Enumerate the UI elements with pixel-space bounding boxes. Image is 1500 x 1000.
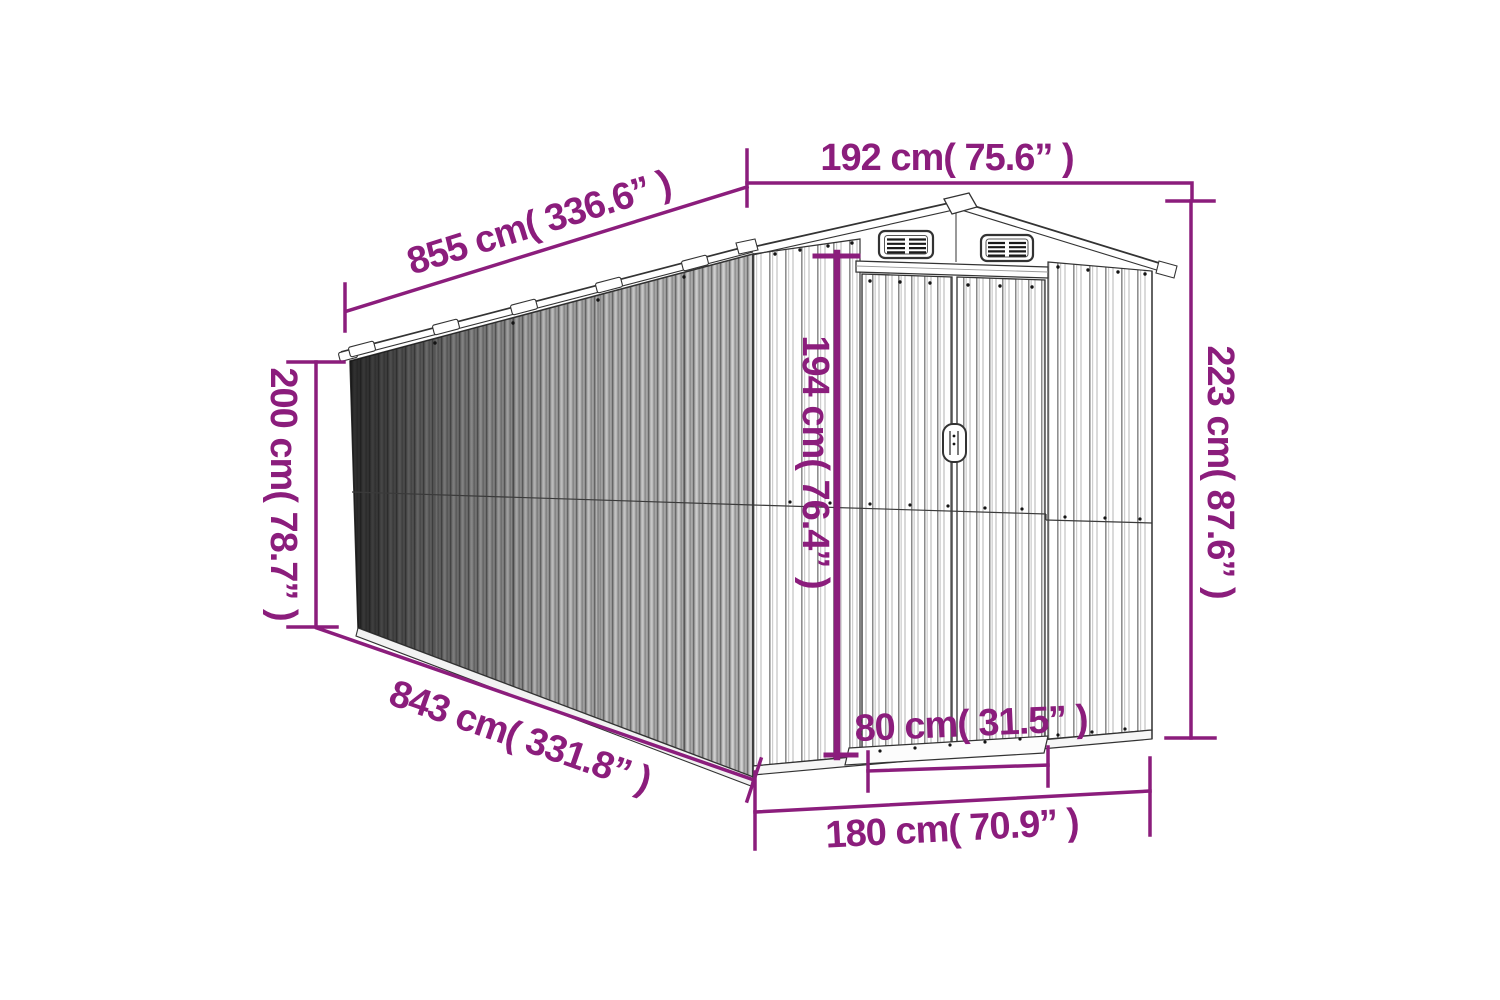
rake-end-cap-left <box>736 239 758 254</box>
dim-door-height-label: 194 cm( 76.4” ) <box>794 335 836 588</box>
dim-wall-height-label: 200 cm( 78.7” ) <box>262 367 304 620</box>
dim-wall-height: 200 cm( 78.7” ) <box>262 362 344 627</box>
dim-total-height-label: 223 cm( 87.6” ) <box>1199 345 1241 598</box>
door-left <box>862 274 952 756</box>
dim-total-height: 223 cm( 87.6” ) <box>1166 201 1241 738</box>
gable-vent-right <box>981 235 1033 261</box>
door-handle <box>943 424 966 462</box>
shed-dimension-diagram: 855 cm( 336.6” ) 192 cm( 75.6” ) 223 cm(… <box>0 0 1500 1000</box>
front-right-panel <box>1048 262 1152 739</box>
dim-base-width-label: 180 cm( 70.9” ) <box>824 801 1079 856</box>
dim-base-width: 180 cm( 70.9” ) <box>755 758 1150 857</box>
diagram-canvas: 855 cm( 336.6” ) 192 cm( 75.6” ) 223 cm(… <box>0 0 1500 1000</box>
rake-end-cap-right <box>1156 261 1177 278</box>
dim-roof-width-label: 192 cm( 75.6” ) <box>820 137 1073 179</box>
gable-vent-left <box>879 231 933 258</box>
